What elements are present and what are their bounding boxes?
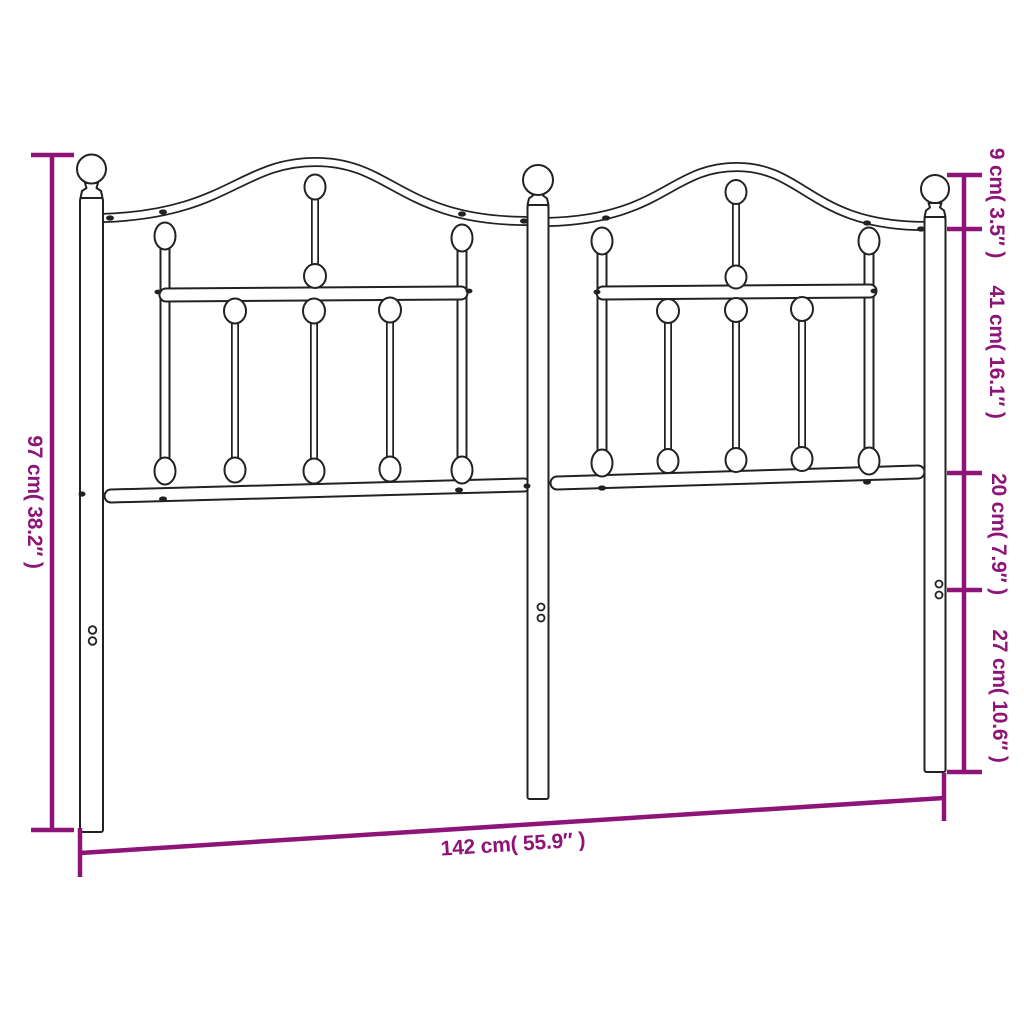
left-post: [80, 198, 103, 832]
right-post: [925, 217, 946, 772]
mounting-holes: [89, 581, 943, 645]
segment-41cm-label: 41 cm( 16.1″ ): [984, 285, 1008, 418]
arch-tubes: [103, 162, 925, 226]
center-post: [528, 205, 549, 799]
width-dimension-line: [80, 773, 944, 877]
mid-rails: [166, 291, 870, 295]
segment-20cm-label: 20 cm( 7.9″ ): [986, 473, 1010, 595]
product-dimension-diagram: 97 cm( 38.2″ ) 9 cm( 3.5″ ) 41 cm( 16.1″…: [0, 0, 1024, 1024]
segment-27cm-label: 27 cm( 10.6″ ): [987, 629, 1011, 762]
finials: [77, 155, 949, 218]
segment-9cm-label: 9 cm( 3.5″ ): [984, 148, 1008, 258]
segment-dimension-line: [947, 175, 982, 772]
baluster-shafts: [165, 187, 869, 471]
height-dimension-label: 97 cm( 38.2″ ): [22, 435, 46, 568]
headboard-drawing: [0, 0, 1024, 1024]
